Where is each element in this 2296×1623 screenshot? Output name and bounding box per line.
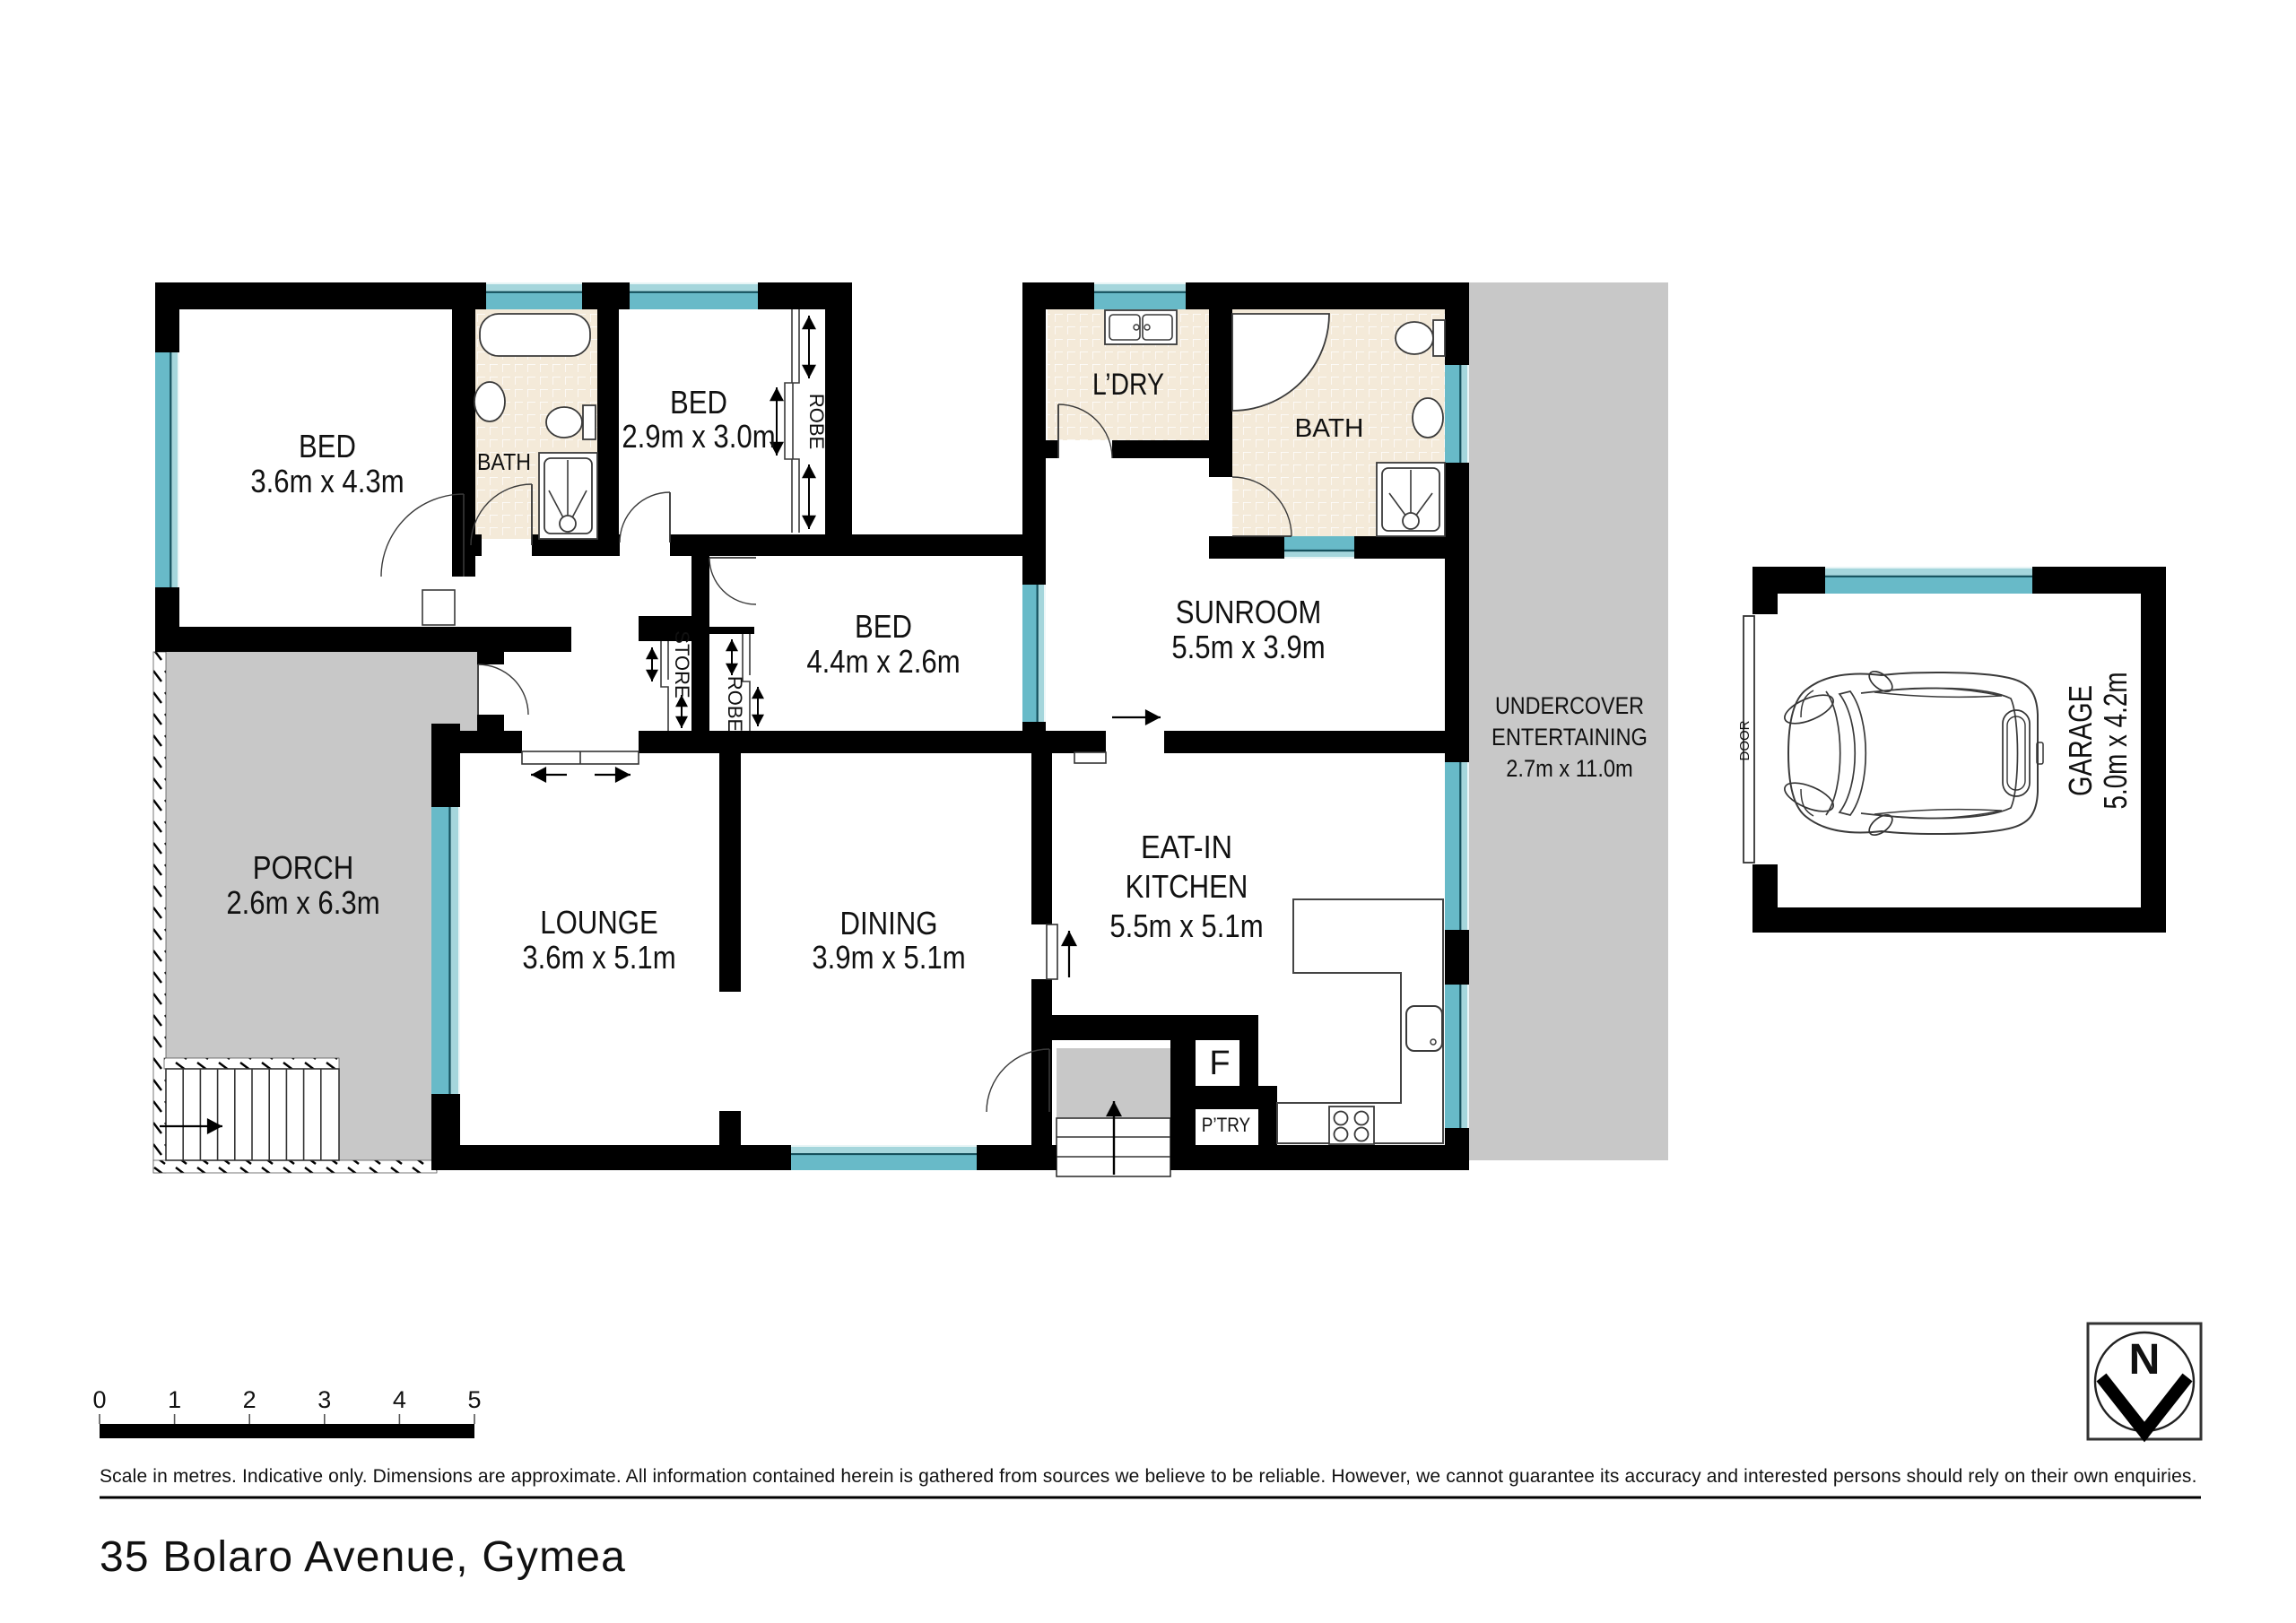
svg-text:3.9m x 5.1m: 3.9m x 5.1m [812, 939, 965, 976]
svg-text:3.6m x 4.3m: 3.6m x 4.3m [250, 463, 404, 499]
svg-text:0: 0 [92, 1386, 106, 1413]
svg-text:F: F [1209, 1045, 1230, 1082]
svg-text:KITCHEN: KITCHEN [1126, 868, 1248, 905]
svg-text:BATH: BATH [477, 448, 531, 475]
svg-text:ROBE: ROBE [724, 676, 746, 732]
svg-text:ENTERTAINING: ENTERTAINING [1492, 724, 1648, 751]
svg-text:PORCH: PORCH [253, 849, 353, 886]
svg-text:5.0m x 4.2m: 5.0m x 4.2m [2097, 673, 2134, 810]
svg-text:DOOR: DOOR [1737, 720, 1752, 760]
svg-text:L’DRY: L’DRY [1092, 368, 1164, 402]
svg-text:STORE: STORE [671, 630, 693, 698]
svg-text:BATH: BATH [1295, 414, 1364, 443]
svg-text:35 Bolaro Avenue, Gymea: 35 Bolaro Avenue, Gymea [100, 1533, 626, 1581]
svg-text:4: 4 [393, 1386, 406, 1413]
svg-text:1: 1 [168, 1386, 181, 1413]
svg-text:Scale in metres. Indicative on: Scale in metres. Indicative only. Dimens… [100, 1466, 2197, 1487]
svg-text:ROBE: ROBE [805, 394, 828, 449]
svg-text:EAT-IN: EAT-IN [1141, 829, 1232, 865]
svg-text:3: 3 [317, 1386, 331, 1413]
svg-text:2.9m x 3.0m: 2.9m x 3.0m [622, 418, 775, 455]
svg-text:BED: BED [299, 428, 356, 464]
svg-text:GARAGE: GARAGE [2062, 685, 2099, 796]
svg-text:LOUNGE: LOUNGE [540, 904, 658, 941]
svg-text:2.7m x 11.0m: 2.7m x 11.0m [1506, 755, 1633, 782]
svg-text:DINING: DINING [840, 905, 938, 942]
svg-text:5.5m x 5.1m: 5.5m x 5.1m [1109, 907, 1263, 944]
svg-text:BED: BED [855, 608, 912, 645]
svg-text:BED: BED [670, 384, 727, 421]
svg-text:UNDERCOVER: UNDERCOVER [1495, 692, 1644, 719]
svg-text:P’TRY: P’TRY [1202, 1114, 1251, 1136]
svg-text:SUNROOM: SUNROOM [1176, 594, 1322, 630]
svg-text:5: 5 [467, 1386, 481, 1413]
svg-text:4.4m x 2.6m: 4.4m x 2.6m [806, 643, 960, 680]
svg-text:5.5m x 3.9m: 5.5m x 3.9m [1171, 629, 1325, 665]
svg-text:N: N [2129, 1336, 2161, 1384]
svg-text:2: 2 [243, 1386, 257, 1413]
svg-text:2.6m x 6.3m: 2.6m x 6.3m [226, 884, 379, 921]
svg-text:3.6m x 5.1m: 3.6m x 5.1m [522, 939, 675, 976]
